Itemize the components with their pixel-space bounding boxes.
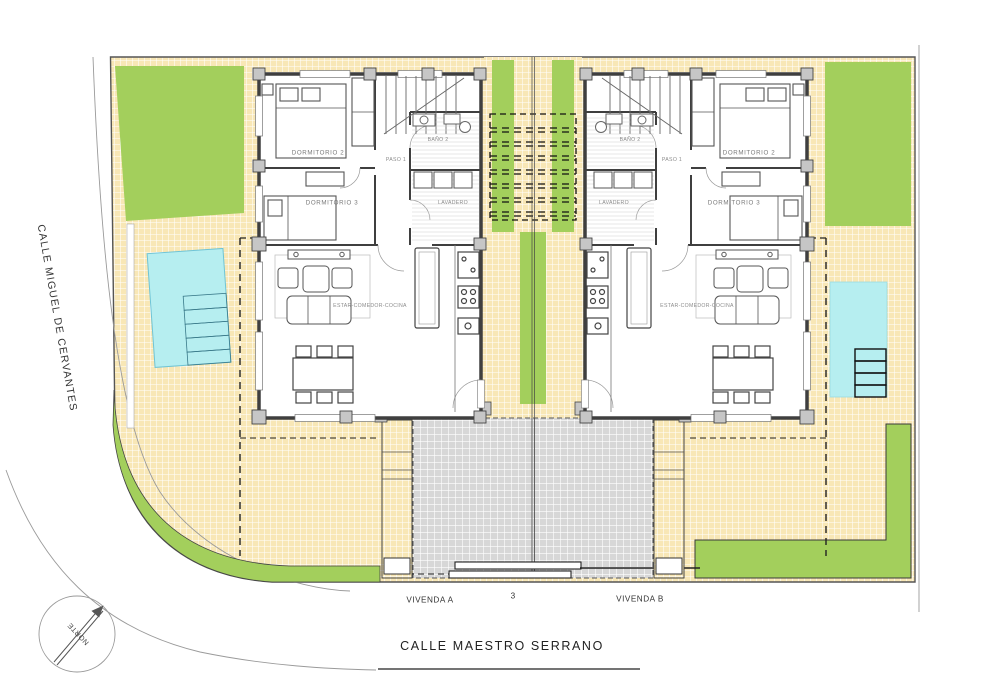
room-label-a-paso1: PASO 1 [386,157,406,163]
room-label-b-lavadero: LAVADERO [599,200,629,206]
room-label-b-dormitorio3: DORMITORIO 3 [708,200,760,207]
house-b-name: VIVENDA B [616,595,664,604]
plot-number: 3 [511,592,516,601]
driveway [413,418,653,578]
room-label-b-estar: ESTAR-COMEDOR-COCINA [660,303,734,309]
room-label-b-bano2: BAÑO 2 [620,137,641,143]
room-label-a-lavadero: LAVADERO [438,200,468,206]
room-label-b-dormitorio2: DORMITORIO 2 [723,150,775,157]
room-label-a-estar: ESTAR-COMEDOR-COCINA [333,303,407,309]
room-label-b-paso1: PASO 1 [662,157,682,163]
room-label-a-bano2: BAÑO 2 [428,137,449,143]
room-label-a-dormitorio2: DORMITORIO 2 [292,150,344,157]
street-label-bottom: CALLE MAESTRO SERRANO [400,639,604,653]
pool-right [830,282,887,397]
site-plan-drawing [0,0,1006,674]
house-a-name: VIVENDA A [406,596,453,605]
room-label-a-dormitorio3: DORMITORIO 3 [306,200,358,207]
left-boundary-wall [127,224,134,428]
pool-left [147,248,231,367]
site-plan-page: CALLE MIGUEL DE CERVANTES CALLE MAESTRO … [0,0,1006,674]
